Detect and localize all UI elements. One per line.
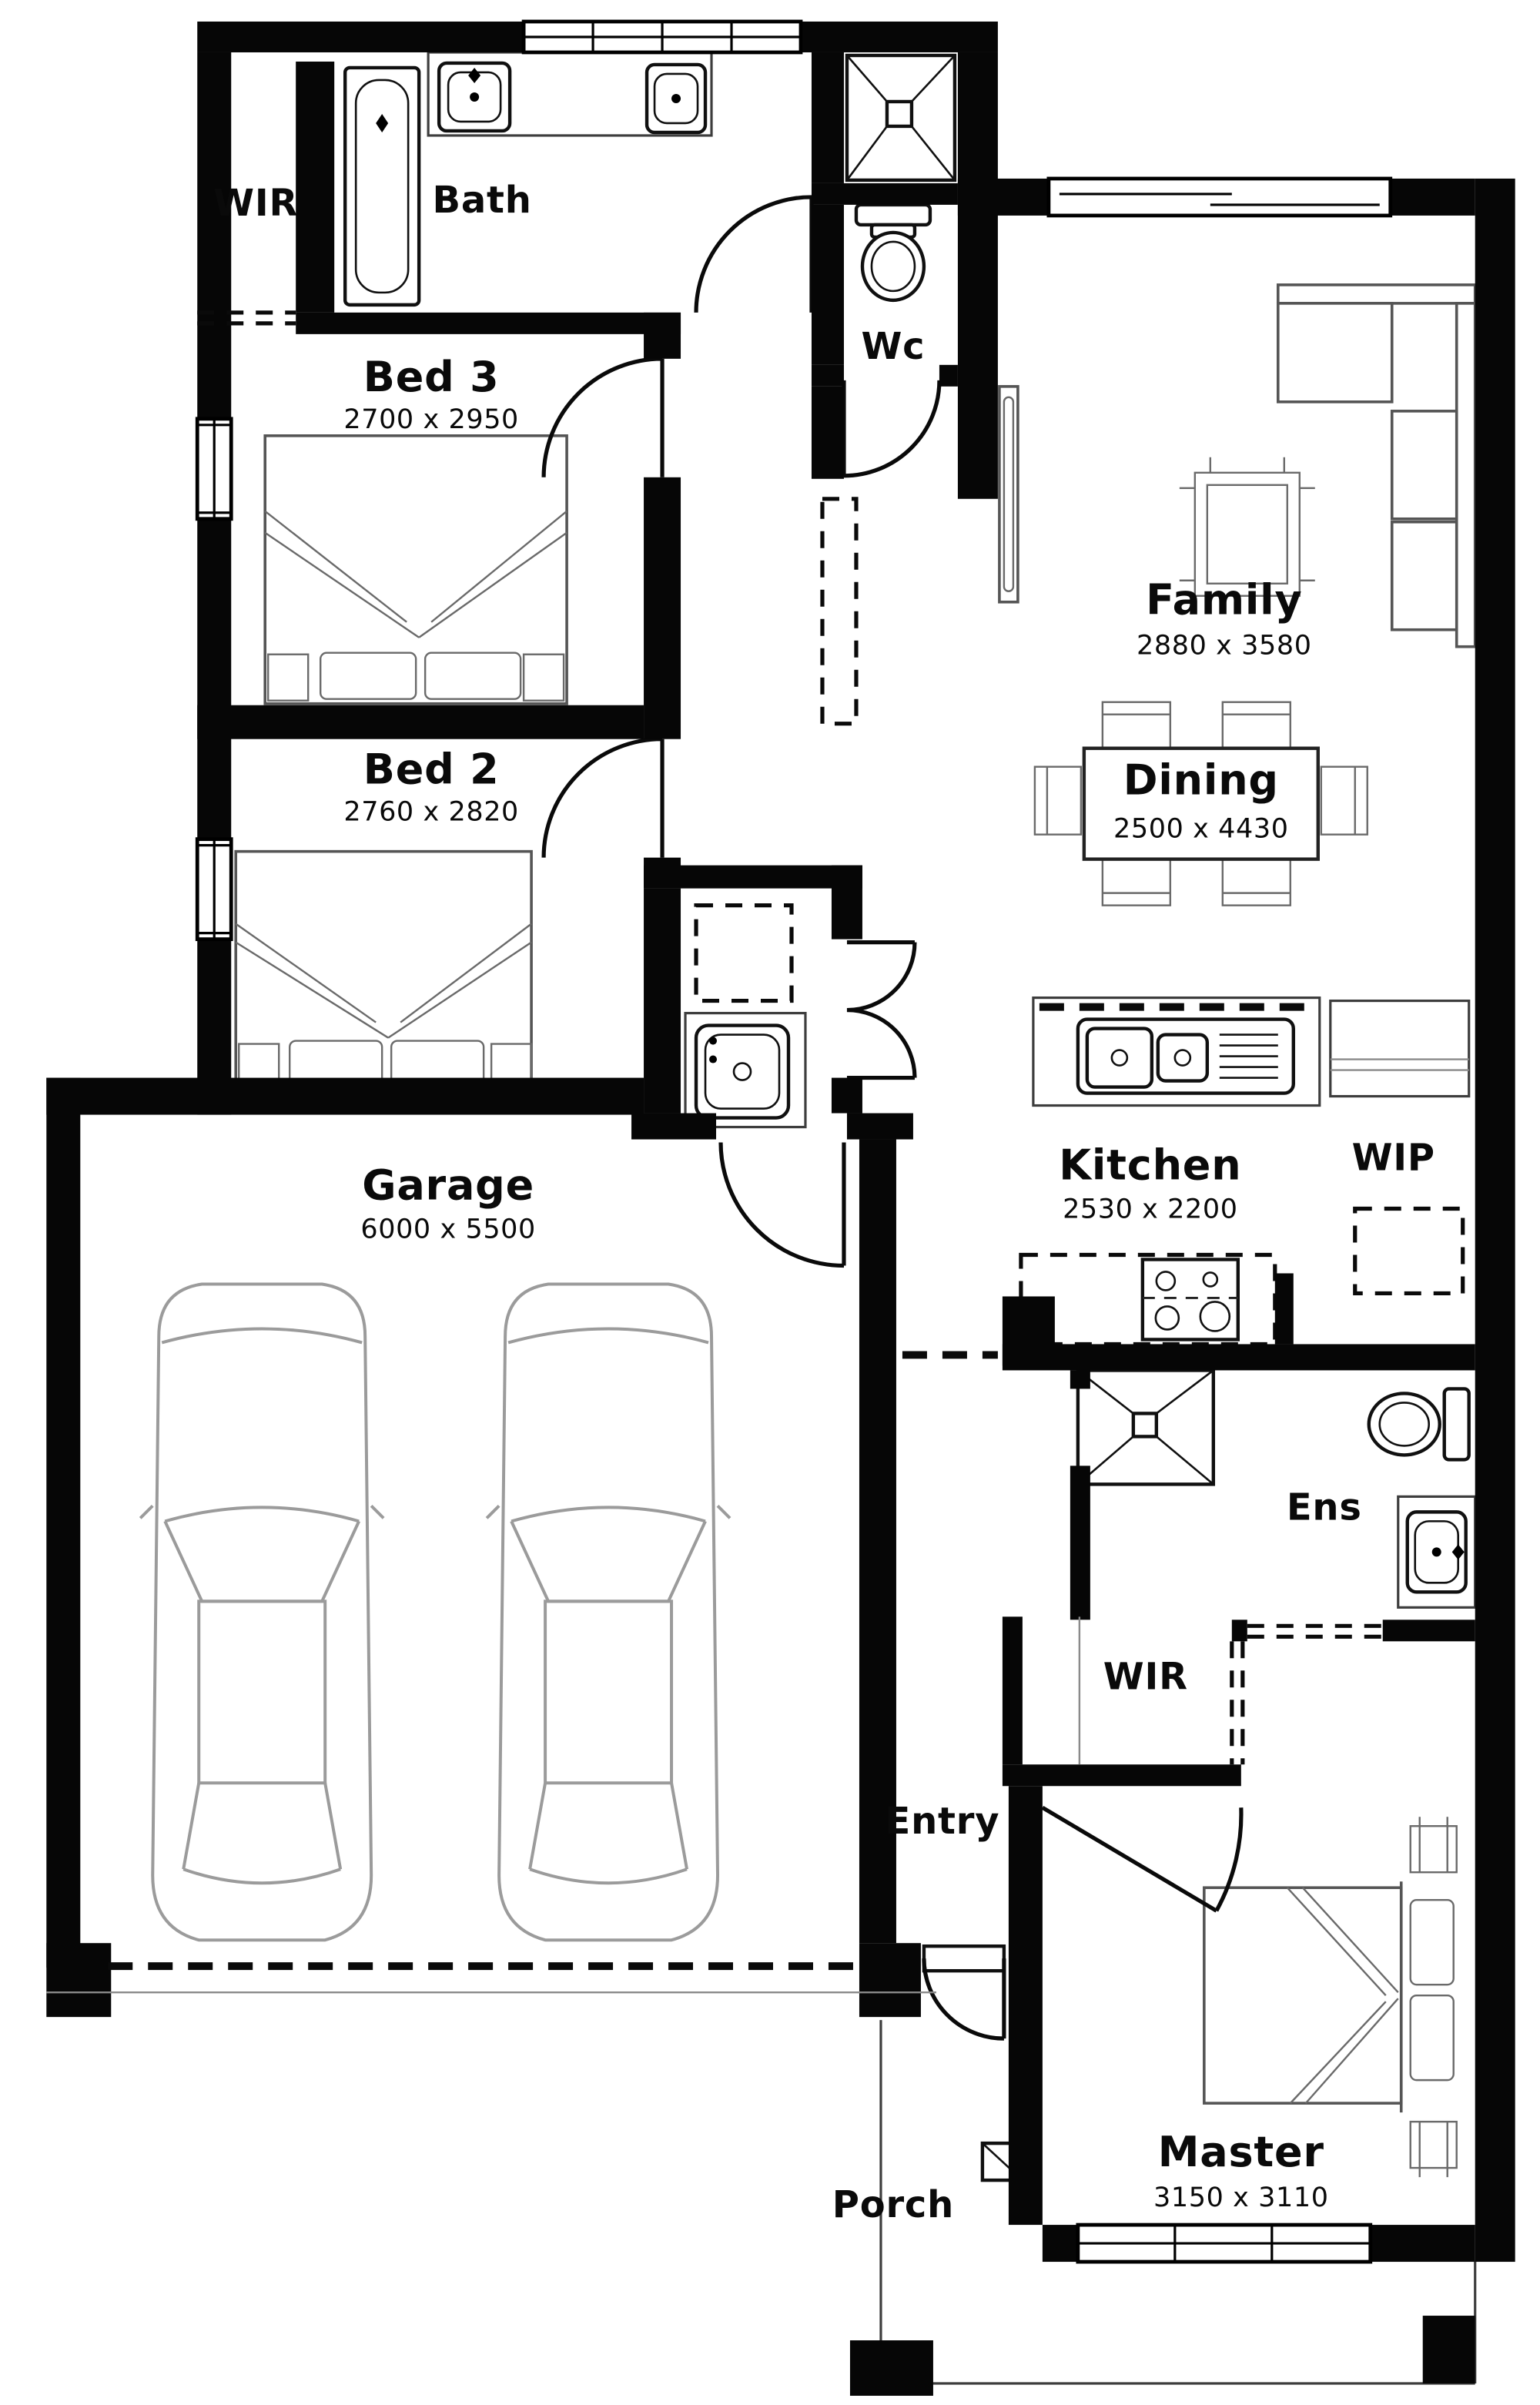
car-icon bbox=[487, 1284, 730, 1940]
label-bath: Bath bbox=[433, 179, 532, 222]
dims-dining: 2500 x 4430 bbox=[1113, 814, 1289, 845]
dims-kitchen: 2530 x 2200 bbox=[1063, 1194, 1238, 1224]
ens-master-opening bbox=[1247, 1626, 1383, 1636]
label-wc: Wc bbox=[861, 325, 925, 368]
label-master: Master bbox=[1158, 2128, 1324, 2176]
tv-unit-icon bbox=[999, 387, 1018, 602]
floor-plan-drawing: WIR Bath Wc Bed 3 2700 x 2950 Bed 2 2760… bbox=[0, 0, 1540, 2405]
label-bed3: Bed 3 bbox=[363, 353, 500, 401]
window-bed3 bbox=[197, 419, 231, 519]
window-master bbox=[1078, 2225, 1371, 2262]
label-entry: Entry bbox=[885, 1800, 1000, 1843]
bathtub-icon bbox=[345, 68, 419, 305]
ens-vanity-icon bbox=[1398, 1496, 1475, 1607]
shower-icon bbox=[847, 55, 955, 180]
ens-shower-icon bbox=[1078, 1370, 1214, 1484]
master-bed-icon bbox=[1204, 1817, 1457, 2177]
dims-garage: 6000 x 5500 bbox=[360, 1214, 536, 1244]
fridge-space-icon bbox=[1331, 1001, 1469, 1097]
kitchen-island-icon bbox=[1033, 998, 1320, 1106]
dims-bed3: 2700 x 2950 bbox=[343, 404, 519, 435]
sofa-icon bbox=[1278, 285, 1475, 647]
label-ens: Ens bbox=[1287, 1486, 1362, 1529]
sliding-window-family bbox=[1049, 179, 1391, 216]
label-bed2: Bed 2 bbox=[363, 745, 500, 794]
bath-vanity-icon bbox=[428, 52, 711, 136]
dims-family: 2880 x 3580 bbox=[1137, 631, 1312, 662]
bed3-icon bbox=[265, 436, 567, 704]
label-wir1: WIR bbox=[213, 182, 298, 225]
laundry-tub-icon bbox=[685, 1013, 805, 1127]
bed2-icon bbox=[236, 852, 531, 1095]
window-top bbox=[524, 22, 801, 52]
wir2-robe bbox=[1232, 1641, 1243, 1764]
label-wir2: WIR bbox=[1103, 1655, 1188, 1698]
floor-plan-sheet: WIR Bath Wc Bed 3 2700 x 2950 Bed 2 2760… bbox=[0, 0, 1540, 2405]
linen-cupboard bbox=[822, 499, 856, 724]
pantry-shelf bbox=[1355, 1208, 1463, 1293]
entry-threshold bbox=[924, 1946, 1004, 1971]
car-icon bbox=[140, 1284, 383, 1940]
label-garage: Garage bbox=[362, 1161, 534, 1210]
label-family: Family bbox=[1146, 576, 1302, 625]
label-kitchen: Kitchen bbox=[1059, 1141, 1241, 1190]
cooktop-icon bbox=[1021, 1254, 1275, 1344]
label-porch: Porch bbox=[832, 2183, 954, 2226]
label-wip: WIP bbox=[1352, 1137, 1435, 1180]
window-bed2 bbox=[197, 839, 231, 940]
washer-space bbox=[696, 906, 792, 1001]
dims-master: 3150 x 3110 bbox=[1153, 2182, 1329, 2213]
dims-bed2: 2760 x 2820 bbox=[343, 797, 519, 828]
toilet-icon bbox=[856, 205, 930, 300]
label-dining: Dining bbox=[1123, 756, 1279, 805]
ens-toilet-icon bbox=[1369, 1388, 1469, 1459]
